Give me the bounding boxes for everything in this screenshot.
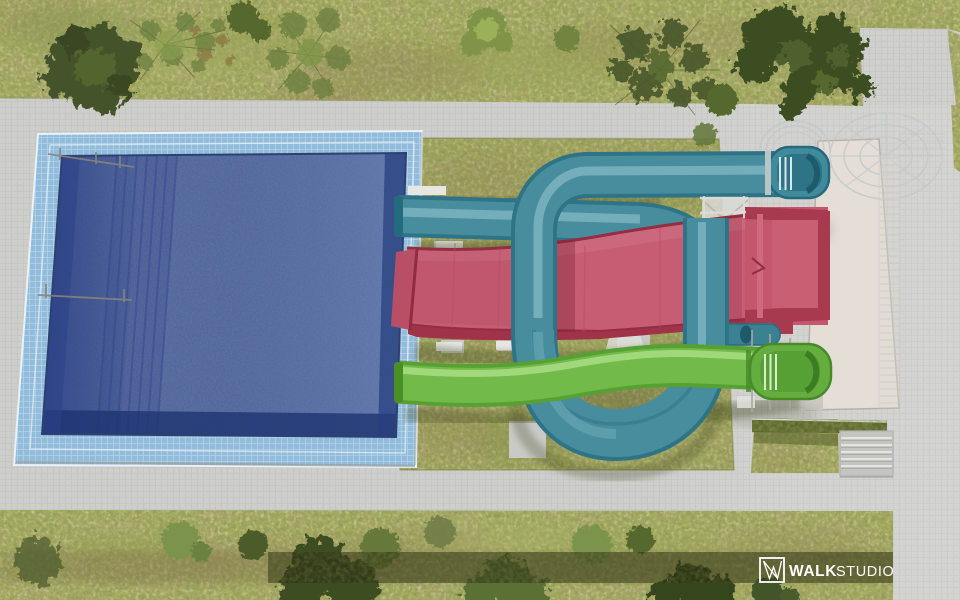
svg-text:WALK: WALK — [789, 563, 837, 580]
svg-text:STUDIO: STUDIO — [836, 564, 894, 580]
